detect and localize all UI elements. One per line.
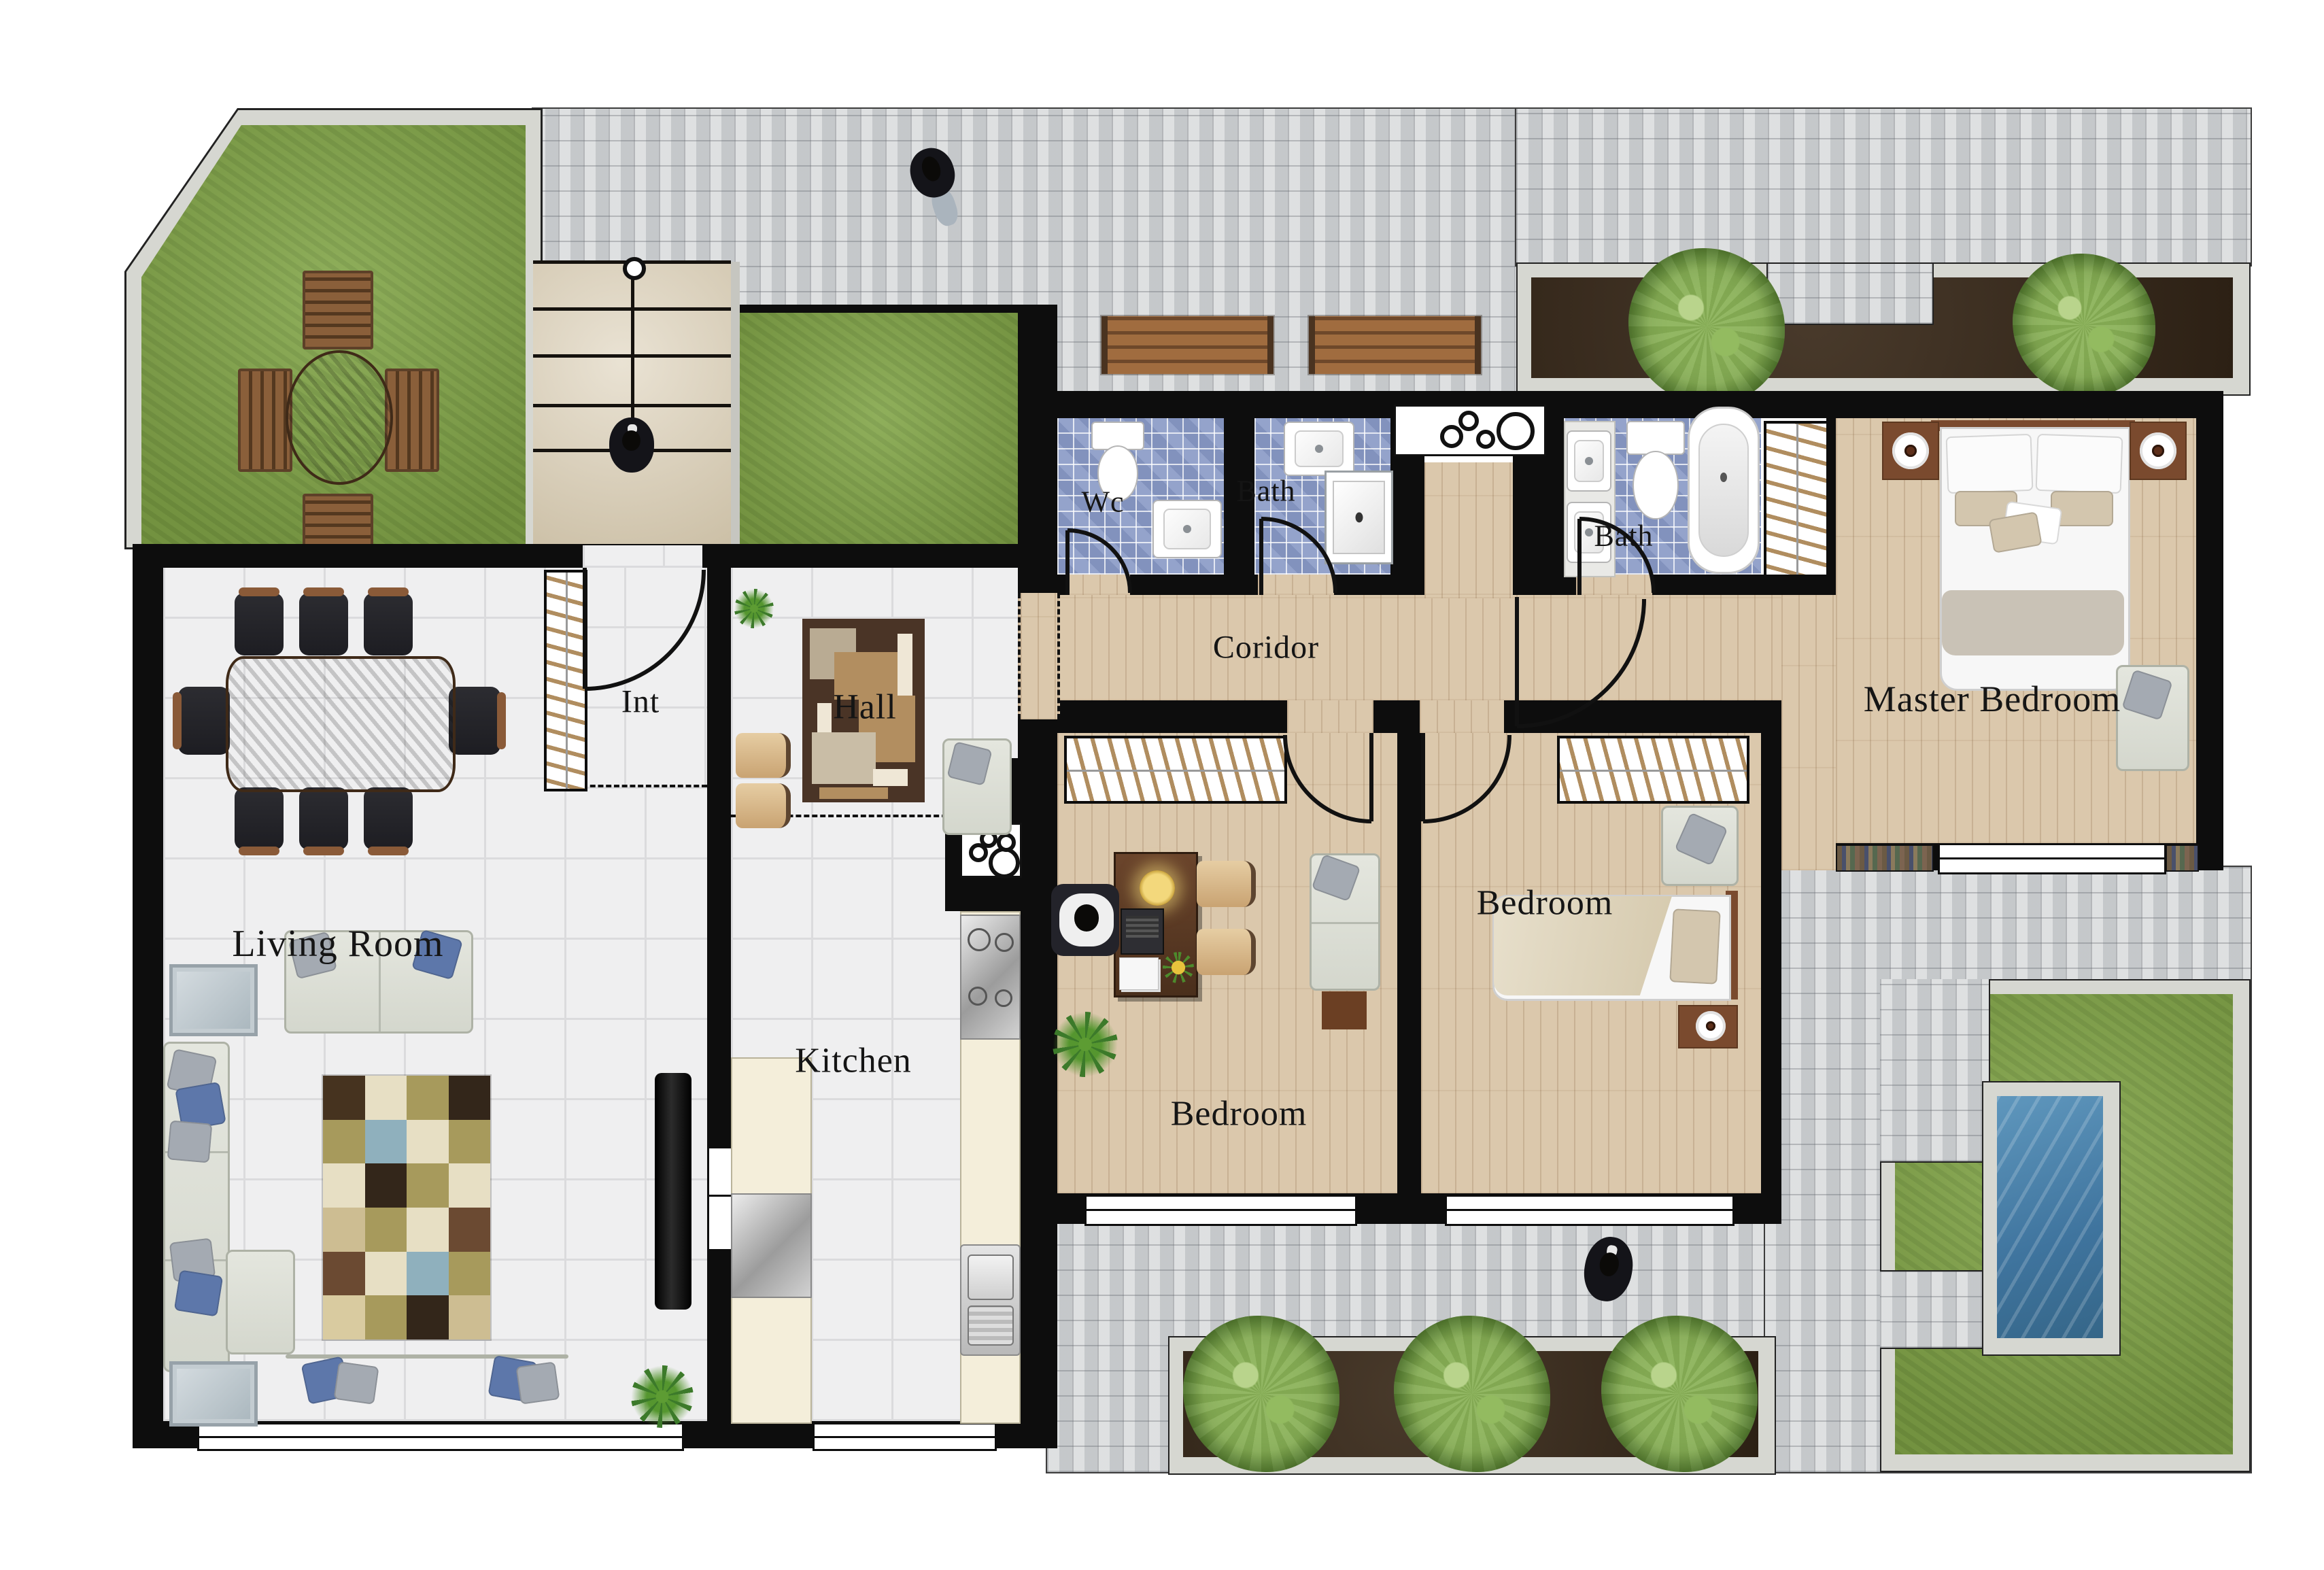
bedroom-office-door <box>1285 733 1373 821</box>
rug-cell <box>365 1163 407 1208</box>
desk-lamp <box>1140 870 1175 906</box>
terrace-pavers-right <box>1516 109 2251 265</box>
guest-chair <box>1197 861 1256 907</box>
sofa-chaise <box>226 1250 295 1354</box>
garden-bench-right <box>385 369 439 472</box>
room-label-master: Master Bedroom <box>1864 678 2121 720</box>
hall-chair <box>736 733 791 778</box>
room-label-bath-small: Bath <box>1236 474 1295 509</box>
wc-door <box>1065 530 1130 595</box>
rug-cell <box>365 1076 407 1120</box>
dining-chair <box>449 687 500 755</box>
room-label-bedroom-single: Bedroom <box>1477 883 1613 923</box>
papers <box>1119 957 1159 990</box>
master-passage-door <box>1515 597 1644 726</box>
pillow <box>1946 434 2034 494</box>
wardrobe <box>544 570 587 791</box>
rug-cell <box>323 1295 365 1339</box>
rug-cell <box>449 1120 491 1164</box>
room-label-living: Living Room <box>232 922 443 966</box>
pillow <box>515 1361 560 1405</box>
rug-cell <box>449 1076 491 1120</box>
rug-cell <box>449 1295 491 1339</box>
dining-chair <box>364 787 413 850</box>
kitchen-sink <box>960 1244 1021 1356</box>
garden-bench-left <box>238 369 292 472</box>
garden-bench-top <box>303 271 373 349</box>
laundry-counter <box>1394 405 1546 456</box>
wall <box>1057 391 2223 418</box>
entrance-door <box>583 568 705 690</box>
rug-small <box>1322 991 1367 1029</box>
pillow <box>333 1361 379 1405</box>
rug-cell <box>407 1163 449 1208</box>
bathtub <box>1688 407 1760 574</box>
dining-chair <box>178 687 230 755</box>
rug-cell <box>323 1252 365 1296</box>
bath-main-door <box>1577 519 1654 595</box>
terrace-bench <box>1101 316 1274 374</box>
window <box>1084 1195 1357 1226</box>
plant <box>631 1365 694 1428</box>
bookshelf <box>1836 844 1934 872</box>
room-label-bedroom-office: Bedroom <box>1171 1094 1308 1134</box>
bedroom-single-door <box>1421 733 1509 821</box>
rug-cell <box>407 1295 449 1339</box>
doorway <box>1287 700 1373 733</box>
pillow <box>1669 908 1721 985</box>
hall-corridor-opening <box>1018 593 1060 719</box>
rug-cell <box>449 1163 491 1208</box>
rug-cell <box>407 1120 449 1164</box>
nightstand <box>2130 422 2187 480</box>
nightstand <box>1882 422 1939 480</box>
room-label-kitchen: Kitchen <box>795 1041 912 1081</box>
rug-cell <box>323 1076 365 1120</box>
rug-cell <box>365 1208 407 1252</box>
dining-chair <box>299 787 348 850</box>
rug-cell <box>449 1208 491 1252</box>
side-table <box>169 1361 258 1427</box>
sink <box>1567 430 1611 492</box>
courtyard-grass <box>740 313 1018 568</box>
pool-garden-notch-mid <box>1880 1270 1990 1349</box>
terrace-bench <box>1309 316 1481 374</box>
pillow <box>174 1269 224 1316</box>
plant <box>1053 1012 1118 1077</box>
pool-garden-notch-top <box>1880 979 1990 1163</box>
side-table <box>169 964 258 1036</box>
pool <box>1997 1096 2103 1338</box>
room-label-corridor: Coridor <box>1213 629 1319 666</box>
window <box>813 1422 997 1451</box>
planter-top-notch <box>1766 262 1934 325</box>
living-rug <box>322 1074 492 1341</box>
tv <box>655 1073 691 1310</box>
room-label-hall: Hall <box>833 687 897 728</box>
blanket <box>1942 590 2124 655</box>
cooktop <box>960 915 1021 1040</box>
dining-chair <box>235 787 284 850</box>
int-hall-open-boundary <box>582 785 707 790</box>
plant <box>734 589 774 628</box>
toilet <box>1626 421 1685 519</box>
window <box>1938 843 2166 874</box>
dining-chair <box>235 593 284 655</box>
rug-cell <box>407 1208 449 1252</box>
sink <box>1152 500 1222 558</box>
hall-chair <box>736 783 791 828</box>
rug-cell <box>365 1252 407 1296</box>
dining-chair <box>299 593 348 655</box>
desk-flower <box>1163 952 1194 983</box>
wall <box>1761 707 1781 1224</box>
wall <box>707 568 731 1421</box>
wall <box>133 544 163 1448</box>
corridor-floor <box>1057 595 1781 700</box>
floor-plan: Living Room Int Hall Kitchen Wc Bath Bat… <box>0 0 2324 1570</box>
rug-cell <box>365 1120 407 1164</box>
rug-cell <box>449 1252 491 1296</box>
rug-cell <box>323 1163 365 1208</box>
rug-cell <box>365 1295 407 1339</box>
wall <box>1397 733 1421 1193</box>
pillow <box>2036 434 2123 494</box>
window <box>197 1422 684 1451</box>
pillow <box>167 1120 213 1163</box>
person-at-desk <box>1055 888 1118 952</box>
courtyard-top-wall <box>740 305 1049 313</box>
sink <box>1284 422 1354 476</box>
bookshelf <box>2166 844 2199 872</box>
dishwasher <box>731 1193 812 1298</box>
wall <box>1018 305 1057 1421</box>
corridor-arm-floor <box>1781 595 1836 870</box>
rug-cell <box>323 1208 365 1252</box>
room-label-wc: Wc <box>1081 485 1124 519</box>
wardrobe <box>1764 421 1829 577</box>
stairs-curb <box>731 262 740 547</box>
rug-cell <box>407 1076 449 1120</box>
stairs-start-marker <box>623 257 646 280</box>
bath-small-door <box>1259 519 1335 595</box>
dining-chair <box>364 593 413 655</box>
wardrobe <box>1064 736 1287 804</box>
entrance-opening <box>583 545 702 568</box>
rug-cell <box>407 1252 449 1296</box>
garden-round-table <box>286 350 393 485</box>
doorway <box>1420 700 1504 733</box>
rug-cell <box>323 1120 365 1164</box>
guest-chair <box>1197 929 1256 975</box>
nightstand <box>1678 1005 1738 1048</box>
doorway <box>1424 575 1513 595</box>
dining-table <box>226 656 456 792</box>
wall <box>2196 391 2223 870</box>
window <box>1445 1195 1735 1226</box>
person-figure <box>607 405 656 481</box>
laptop <box>1121 908 1164 955</box>
wardrobe <box>1557 736 1749 804</box>
sofa <box>286 1354 568 1359</box>
